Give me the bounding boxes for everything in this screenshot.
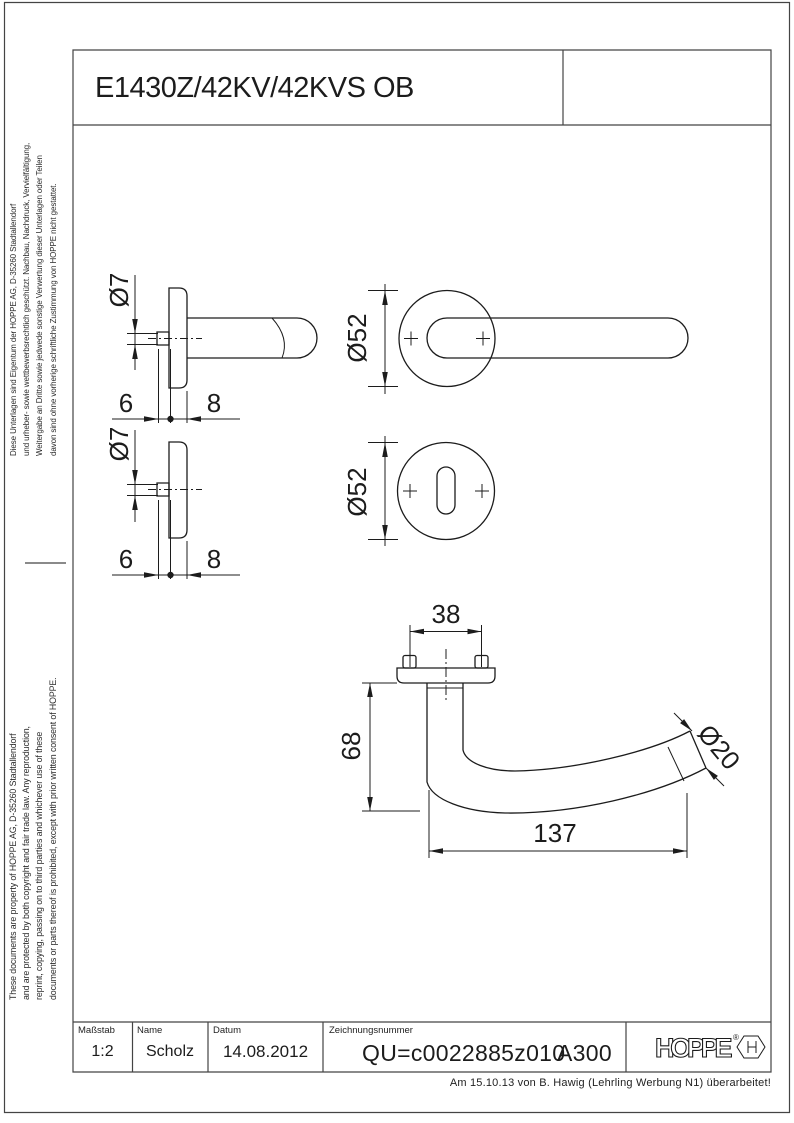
- screw-hole-crosses-2: [403, 484, 489, 498]
- legal-de-line: und urheber- sowie wettbewerbsrechtlich …: [20, 143, 33, 456]
- legal-en-line: reprint, copying, passing on to third pa…: [33, 677, 46, 1000]
- dim-label-offset-2: 6: [119, 544, 133, 574]
- key-rose-side-view: Ø7 6 8: [104, 427, 240, 579]
- screw-hole-crosses: [404, 332, 490, 346]
- dia52-dim-lines-2: [368, 436, 398, 546]
- handle-top-view: 38 68 137 Ø20: [336, 599, 746, 858]
- legal-de-line: Weitergabe an Dritte sowie jedwede sonst…: [33, 143, 46, 456]
- registered-mark: ®: [733, 1033, 739, 1042]
- key-rose-front-view: Ø52: [342, 436, 495, 546]
- scale-value: 1:2: [73, 1043, 132, 1061]
- handle-front-view: Ø52: [342, 284, 688, 394]
- dim-label-handle-length: 137: [533, 818, 576, 848]
- date-label: Datum: [213, 1025, 241, 1036]
- dim-label-screw-spacing: 38: [432, 599, 461, 629]
- legal-text-german: Diese Unterlagen sind Eigentum der HOPPE…: [7, 143, 60, 456]
- handle-side-view: Ø7 6 8: [104, 273, 317, 423]
- drawing-sheet: { "sheet": { "title": "E1430Z/42KV/42KVS…: [0, 0, 794, 1123]
- dim-label-rose-dia-2: Ø52: [342, 467, 372, 516]
- legal-en-line: These documents are property of HOPPE AG…: [7, 677, 20, 1000]
- name-value: Scholz: [132, 1043, 208, 1061]
- dim-label-spindle-dia: Ø7: [104, 273, 134, 308]
- legal-de-line: Diese Unterlagen sind Eigentum der HOPPE…: [7, 143, 20, 456]
- handle-inner-curve: [463, 683, 690, 771]
- drawing-number-value: QU=c0022885z010: [362, 1040, 565, 1067]
- hoppe-logo: HOPPE ®: [655, 1033, 765, 1063]
- dim-label-rose-thickness-2: 8: [207, 544, 221, 574]
- grip-bend-arc: [272, 318, 284, 358]
- legal-en-line: and are protected by both copyright and …: [20, 677, 33, 1000]
- hoppe-logo-text: HOPPE: [655, 1033, 733, 1063]
- inner-frame: [73, 50, 771, 1072]
- dim-label-spindle-dia-2: Ø7: [104, 427, 134, 462]
- keyhole-slot: [437, 467, 455, 514]
- scale-label: Maßstab: [78, 1025, 115, 1036]
- legal-de-line: davon sind ohne vorherige schriftliche Z…: [47, 143, 60, 456]
- handle-height-dim-lines: [362, 683, 420, 811]
- dim-label-offset: 6: [119, 388, 133, 418]
- legal-en-line: documents or parts thereof is prohibited…: [47, 677, 60, 1000]
- dia52-dim-lines: [368, 284, 398, 394]
- revision-note: Am 15.10.13 von B. Hawig (Lehrling Werbu…: [450, 1077, 771, 1089]
- handle-grip-front: [427, 318, 688, 358]
- grip-ring-line: [668, 747, 684, 781]
- revision-code: A300: [557, 1040, 612, 1067]
- hoppe-hexagon-h: [748, 1041, 756, 1053]
- name-label: Name: [137, 1025, 162, 1036]
- dim-label-rose-thickness: 8: [207, 388, 221, 418]
- dim-label-rose-dia: Ø52: [342, 313, 372, 362]
- drawing-canvas: Ø7 6 8 Ø7 6 8 Ø52: [0, 0, 794, 1123]
- dim-label-handle-height: 68: [336, 732, 366, 761]
- dim-label-grip-dia: Ø20: [692, 719, 747, 776]
- drawing-number-label: Zeichnungsnummer: [329, 1025, 413, 1036]
- handle-outer-curve: [427, 683, 706, 813]
- grip-side-outline: [187, 318, 317, 358]
- date-value: 14.08.2012: [208, 1042, 323, 1062]
- legal-text-english: These documents are property of HOPPE AG…: [7, 677, 60, 1000]
- page-title: E1430Z/42KV/42KVS OB: [95, 72, 414, 105]
